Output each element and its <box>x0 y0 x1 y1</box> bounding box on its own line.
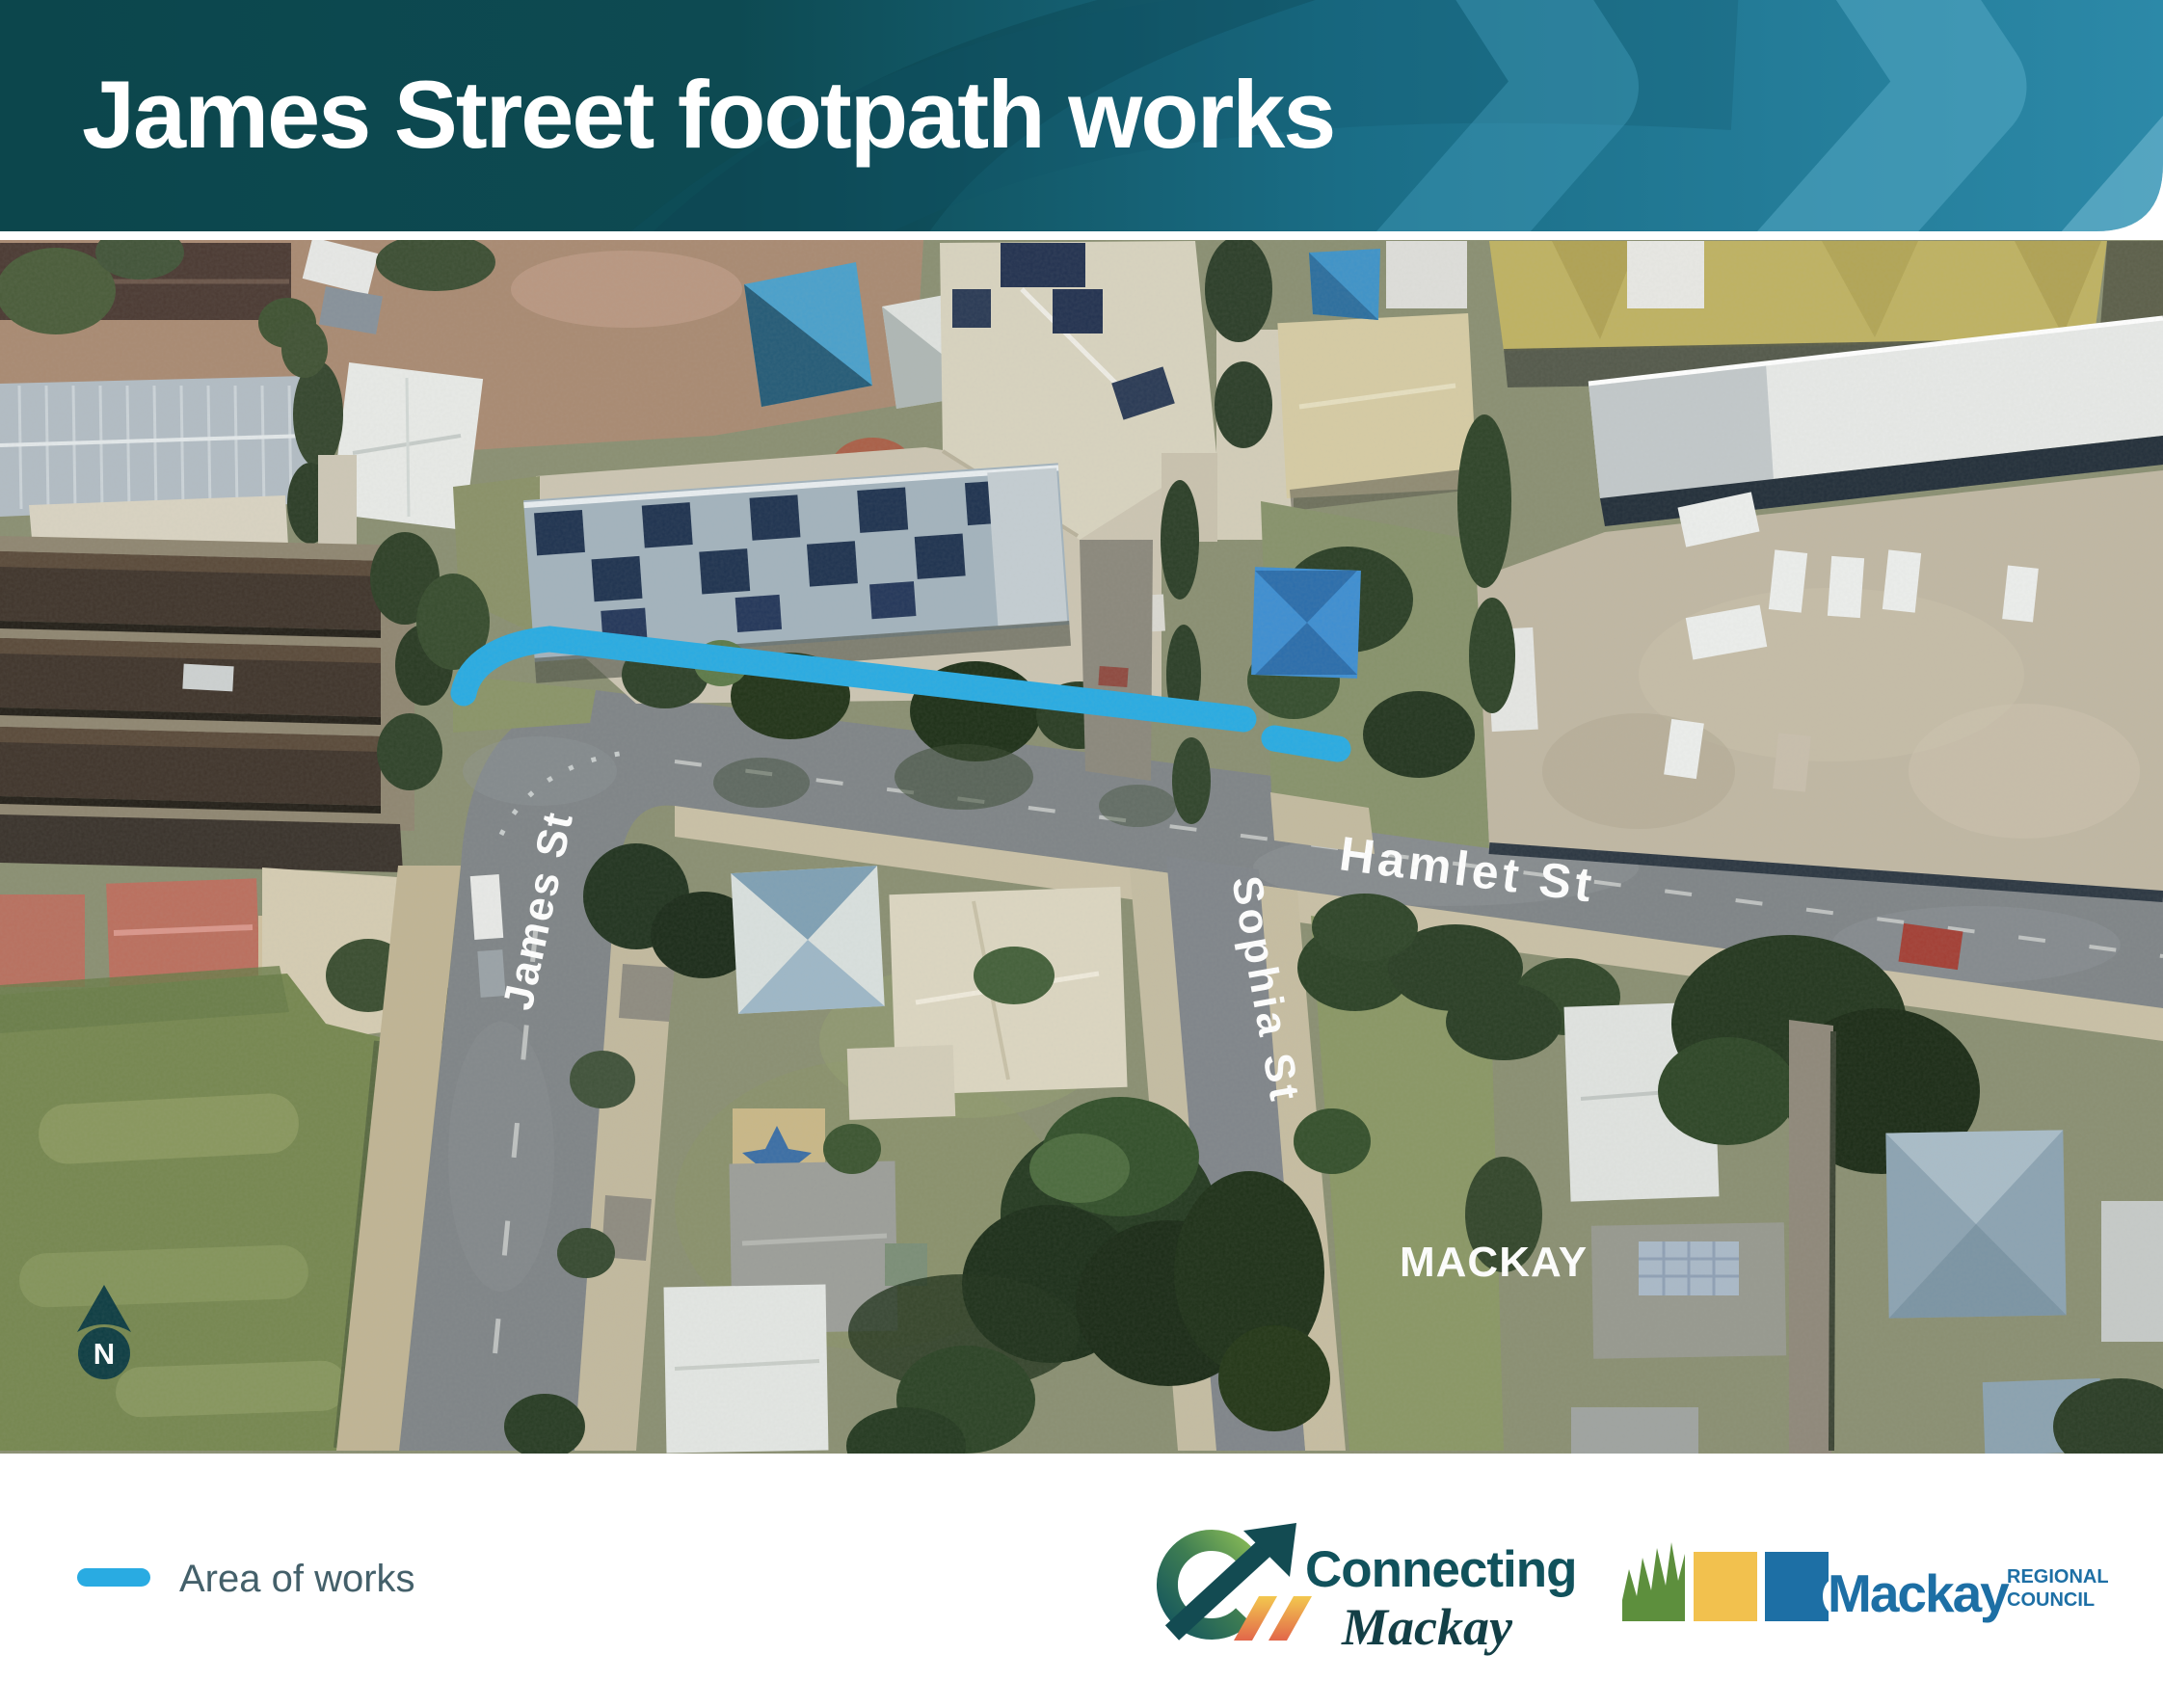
svg-text:Mackay: Mackay <box>1341 1598 1513 1656</box>
svg-text:REGIONAL: REGIONAL <box>2007 1566 2109 1588</box>
svg-text:Area of works: Area of works <box>179 1558 415 1600</box>
svg-text:Connecting: Connecting <box>1305 1541 1576 1598</box>
svg-text:COUNCIL: COUNCIL <box>2007 1589 2095 1611</box>
svg-text:Mackay: Mackay <box>1828 1563 2010 1623</box>
